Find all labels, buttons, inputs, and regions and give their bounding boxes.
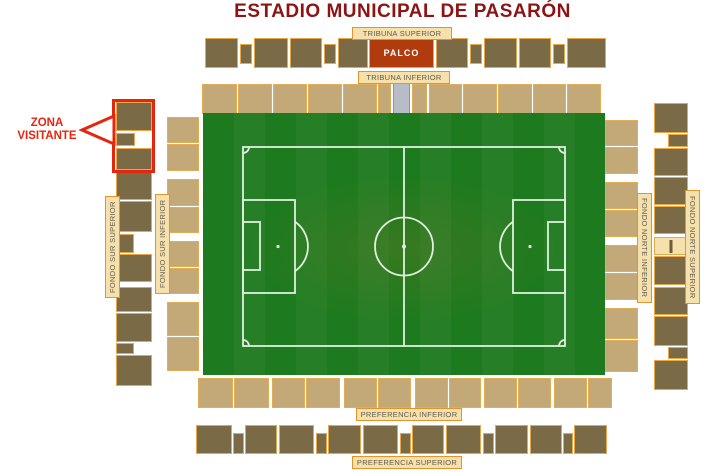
fondo-sur-inferior-block[interactable] xyxy=(167,241,199,267)
fondo-sur-inferior-label: FONDO SUR INFERIOR xyxy=(155,194,170,294)
visitor-zone-outline xyxy=(112,99,155,173)
tribuna-inferior-block[interactable] xyxy=(308,84,342,114)
preferencia-superior-block[interactable] xyxy=(328,425,361,454)
fondo-sur-inferior-block[interactable] xyxy=(167,268,199,294)
preferencia-inferior-block[interactable] xyxy=(378,378,411,408)
tribuna-superior-block[interactable] xyxy=(519,38,551,68)
preferencia-superior-block[interactable] xyxy=(233,433,244,454)
preferencia-inferior-block[interactable] xyxy=(234,378,269,408)
preferencia-inferior-block[interactable] xyxy=(306,378,340,408)
tribuna-inferior-block[interactable] xyxy=(273,84,307,114)
fondo-sur-superior-block[interactable] xyxy=(116,287,152,312)
fondo-norte-superior-block[interactable] xyxy=(654,316,688,346)
preferencia-inferior-block[interactable] xyxy=(272,378,305,408)
preferencia-superior-block[interactable] xyxy=(400,433,411,454)
preferencia-inferior-block[interactable] xyxy=(198,378,233,408)
visitor-zone-label-line1: ZONA xyxy=(4,117,90,130)
preferencia-inferior-block[interactable] xyxy=(554,378,587,408)
fondo-norte-superior-block[interactable] xyxy=(654,103,688,133)
tunnel-block[interactable] xyxy=(393,83,410,114)
tribuna-superior-block[interactable] xyxy=(240,44,252,64)
tribuna-inferior-label: TRIBUNA INFERIOR xyxy=(358,71,450,84)
fondo-norte-inferior-block[interactable] xyxy=(605,210,638,237)
stadium-map: ESTADIO MUNICIPAL DE PASARÓN PALCO xyxy=(0,0,714,473)
fondo-sur-inferior-block[interactable] xyxy=(167,302,199,336)
preferencia-superior-block[interactable] xyxy=(495,425,528,454)
fondo-norte-superior-block[interactable] xyxy=(654,287,688,315)
tribuna-inferior-block[interactable] xyxy=(429,84,462,114)
palco-block[interactable]: PALCO xyxy=(369,38,434,68)
fondo-norte-inferior-block[interactable] xyxy=(605,340,638,372)
fondo-sur-superior-block[interactable] xyxy=(116,254,152,282)
fondo-sur-superior-block[interactable] xyxy=(116,343,134,354)
pitch-markings xyxy=(203,113,605,375)
tribuna-inferior-block[interactable] xyxy=(412,84,427,114)
fondo-norte-inferior-block[interactable] xyxy=(605,245,638,272)
fondo-norte-inferior-block[interactable] xyxy=(605,273,638,300)
fondo-sur-superior-block[interactable] xyxy=(116,355,152,386)
tribuna-superior-block[interactable] xyxy=(254,38,288,68)
tribuna-superior-block[interactable] xyxy=(290,38,322,68)
tribuna-inferior-block[interactable] xyxy=(202,84,237,114)
fondo-sur-superior-label: FONDO SUR SUPERIOR xyxy=(105,196,120,298)
preferencia-superior-label: PREFERENCIA SUPERIOR xyxy=(352,456,462,469)
preferencia-inferior-block[interactable] xyxy=(484,378,517,408)
tribuna-inferior-block[interactable] xyxy=(463,84,497,114)
tribuna-inferior-block[interactable] xyxy=(343,84,377,114)
fondo-norte-superior-block[interactable] xyxy=(668,347,688,359)
tribuna-inferior-block[interactable] xyxy=(498,84,532,114)
fondo-norte-superior-label: FONDO NORTE SUPERIOR xyxy=(685,190,700,304)
preferencia-inferior-block[interactable] xyxy=(518,378,551,408)
fondo-norte-superior-block[interactable] xyxy=(654,206,688,234)
tribuna-superior-block[interactable] xyxy=(553,44,565,64)
fondo-norte-inferior-block[interactable] xyxy=(605,182,638,209)
preferencia-inferior-label: PREFERENCIA INFERIOR xyxy=(356,408,462,421)
preferencia-superior-block[interactable] xyxy=(279,425,314,454)
fondo-norte-superior-block[interactable] xyxy=(654,360,688,390)
fondo-norte-inferior-block[interactable] xyxy=(605,120,638,146)
preferencia-superior-block[interactable] xyxy=(574,425,607,454)
tribuna-superior-block[interactable] xyxy=(470,44,482,64)
tribuna-superior-block[interactable] xyxy=(205,38,238,68)
preferencia-superior-block[interactable] xyxy=(563,433,573,454)
visitor-zone-label-line2: VISITANTE xyxy=(4,130,90,143)
football-pitch xyxy=(203,113,605,375)
preferencia-superior-block[interactable] xyxy=(412,425,444,454)
preferencia-superior-block[interactable] xyxy=(363,425,398,454)
fondo-sur-inferior-block[interactable] xyxy=(167,337,199,371)
fondo-norte-inferior-label: FONDO NORTE INFERIOR xyxy=(637,193,652,303)
fondo-sur-superior-block[interactable] xyxy=(116,172,152,200)
tribuna-superior-block[interactable] xyxy=(484,38,517,68)
preferencia-inferior-block[interactable] xyxy=(344,378,377,408)
preferencia-superior-block[interactable] xyxy=(245,425,277,454)
preferencia-superior-block[interactable] xyxy=(316,433,327,454)
preferencia-superior-block[interactable] xyxy=(483,433,494,454)
preferencia-superior-block[interactable] xyxy=(446,425,481,454)
fondo-norte-superior-block[interactable] xyxy=(654,256,688,285)
fondo-sur-superior-block[interactable] xyxy=(116,313,152,342)
tribuna-inferior-block[interactable] xyxy=(533,84,566,114)
gate-block[interactable] xyxy=(654,237,688,255)
tribuna-inferior-block[interactable] xyxy=(238,84,272,114)
preferencia-superior-block[interactable] xyxy=(196,425,232,454)
fondo-sur-inferior-block[interactable] xyxy=(167,179,199,206)
tribuna-superior-block[interactable] xyxy=(436,38,468,68)
preferencia-superior-block[interactable] xyxy=(530,425,562,454)
preferencia-inferior-block[interactable] xyxy=(415,378,448,408)
fondo-norte-inferior-block[interactable] xyxy=(605,308,638,339)
tribuna-superior-label: TRIBUNA SUPERIOR xyxy=(352,27,452,40)
fondo-norte-superior-block[interactable] xyxy=(654,148,688,176)
fondo-norte-superior-block[interactable] xyxy=(654,177,688,205)
tribuna-superior-block[interactable] xyxy=(338,38,368,68)
preferencia-inferior-block[interactable] xyxy=(449,378,481,408)
fondo-sur-inferior-block[interactable] xyxy=(167,117,199,143)
fondo-sur-inferior-block[interactable] xyxy=(167,207,199,233)
fondo-norte-superior-block[interactable] xyxy=(668,134,688,147)
tribuna-superior-block[interactable] xyxy=(324,44,336,64)
tribuna-superior-block[interactable] xyxy=(567,38,606,68)
tribuna-inferior-block[interactable] xyxy=(378,84,391,114)
page-title: ESTADIO MUNICIPAL DE PASARÓN xyxy=(90,1,714,23)
preferencia-inferior-block[interactable] xyxy=(588,378,612,408)
fondo-norte-inferior-block[interactable] xyxy=(605,147,638,174)
tribuna-inferior-block[interactable] xyxy=(567,84,601,114)
visitor-zone-label: ZONA VISITANTE xyxy=(4,117,90,143)
fondo-sur-inferior-block[interactable] xyxy=(167,144,199,171)
fondo-sur-superior-block[interactable] xyxy=(116,201,152,232)
